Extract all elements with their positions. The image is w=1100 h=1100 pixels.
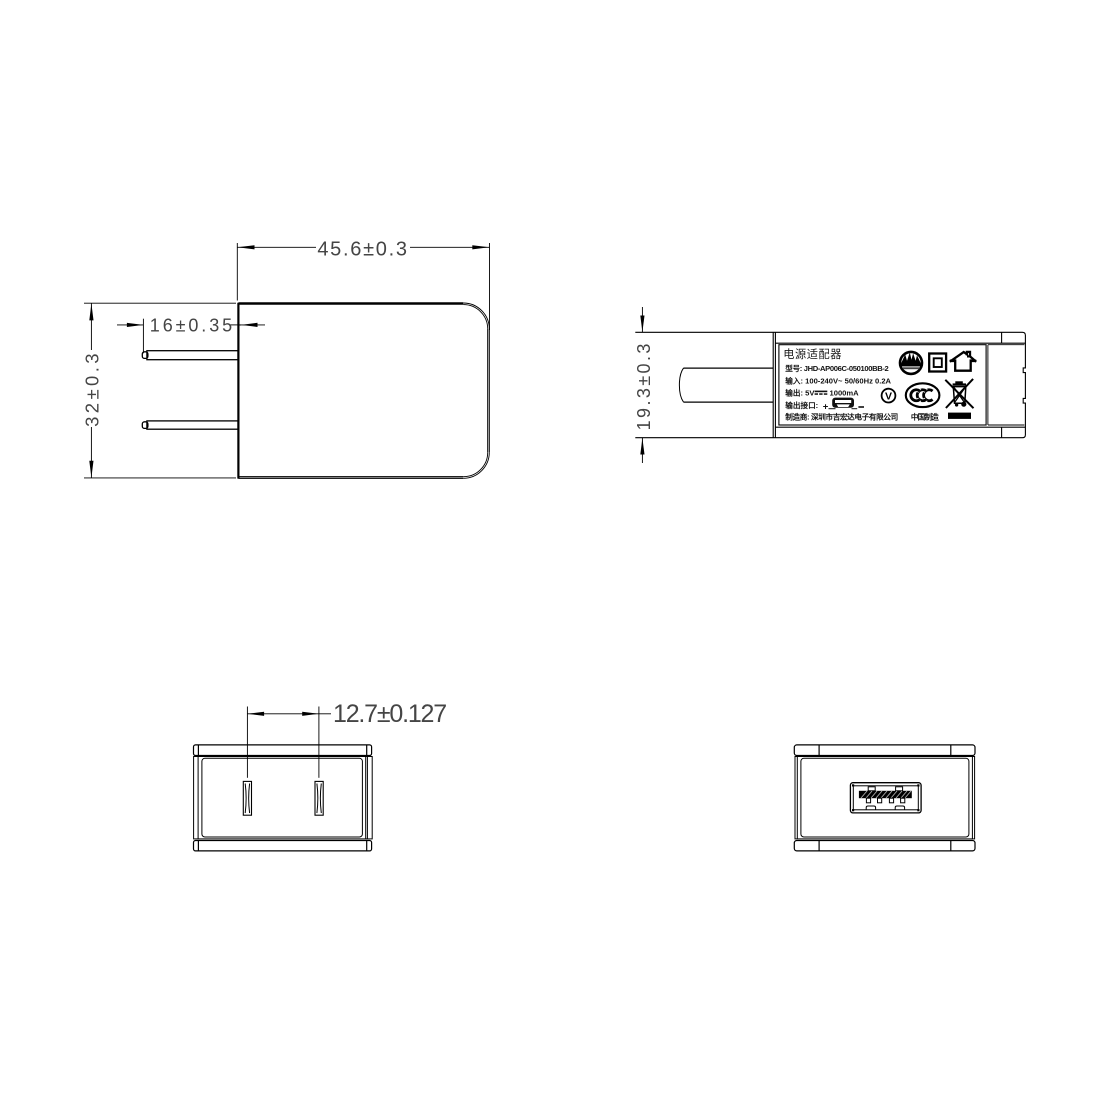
svg-text:输出: 5V: 输出: 5V: [785, 387, 815, 397]
svg-text:制造商: 深圳市吉宏达电子有限公司: 制造商: 深圳市吉宏达电子有限公司: [785, 411, 898, 421]
svg-text:32±0.3: 32±0.3: [82, 350, 103, 427]
svg-text:12.7±0.127: 12.7±0.127: [333, 700, 446, 728]
svg-text:输出接口:: 输出接口:: [785, 400, 818, 410]
svg-text:19.3±0.3: 19.3±0.3: [634, 341, 654, 430]
svg-text:V: V: [885, 391, 892, 403]
svg-text:1000mA: 1000mA: [830, 388, 860, 397]
svg-text:电源适配器: 电源适配器: [783, 347, 842, 361]
svg-text:16±0.35: 16±0.35: [150, 315, 235, 335]
svg-text:45.6±0.3: 45.6±0.3: [317, 239, 408, 261]
svg-text:输入: 100-240V~ 50/60Hz 0.2A: 输入: 100-240V~ 50/60Hz 0.2A: [785, 376, 891, 386]
svg-text:中国制造: 中国制造: [911, 411, 939, 421]
svg-text:型号: JHD-AP006C-050100BB-2: 型号: JHD-AP006C-050100BB-2: [785, 363, 888, 373]
svg-text:+: +: [823, 402, 829, 413]
